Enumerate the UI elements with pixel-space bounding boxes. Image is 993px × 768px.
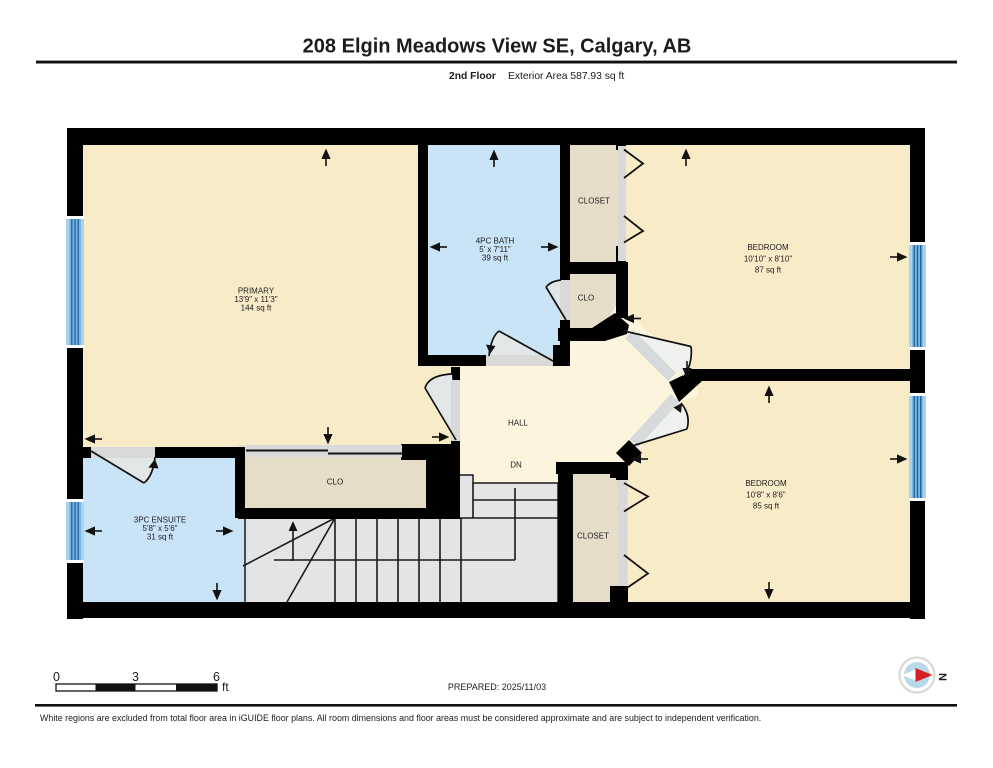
svg-text:2nd Floor: 2nd Floor bbox=[449, 71, 496, 82]
svg-text:ft: ft bbox=[222, 680, 229, 694]
svg-text:3: 3 bbox=[132, 670, 139, 684]
svg-text:White regions are excluded fro: White regions are excluded from total fl… bbox=[40, 713, 761, 723]
svg-text:Exterior Area 587.93 sq ft: Exterior Area 587.93 sq ft bbox=[508, 71, 624, 82]
svg-text:10'8" x 8'6": 10'8" x 8'6" bbox=[746, 491, 786, 500]
svg-text:N: N bbox=[936, 673, 948, 681]
svg-text:6: 6 bbox=[213, 670, 220, 684]
svg-text:BEDROOM: BEDROOM bbox=[745, 479, 787, 488]
svg-text:31 sq ft: 31 sq ft bbox=[147, 533, 174, 542]
svg-text:PREPARED: 2025/11/03: PREPARED: 2025/11/03 bbox=[448, 682, 546, 692]
svg-text:208 Elgin Meadows View SE, Cal: 208 Elgin Meadows View SE, Calgary, AB bbox=[303, 36, 692, 58]
svg-text:CLOSET: CLOSET bbox=[578, 197, 610, 206]
svg-text:144 sq ft: 144 sq ft bbox=[241, 304, 272, 313]
svg-text:85 sq ft: 85 sq ft bbox=[753, 502, 780, 511]
svg-text:CLOSET: CLOSET bbox=[577, 532, 609, 541]
svg-text:CLO: CLO bbox=[578, 294, 594, 303]
svg-text:CLO: CLO bbox=[327, 478, 343, 487]
svg-text:DN: DN bbox=[510, 461, 522, 470]
svg-text:10'10" x 8'10": 10'10" x 8'10" bbox=[744, 255, 792, 264]
svg-text:87 sq ft: 87 sq ft bbox=[755, 266, 782, 275]
svg-text:0: 0 bbox=[53, 670, 60, 684]
svg-text:HALL: HALL bbox=[508, 419, 529, 428]
svg-text:BEDROOM: BEDROOM bbox=[747, 243, 789, 252]
svg-text:39 sq ft: 39 sq ft bbox=[482, 254, 509, 263]
